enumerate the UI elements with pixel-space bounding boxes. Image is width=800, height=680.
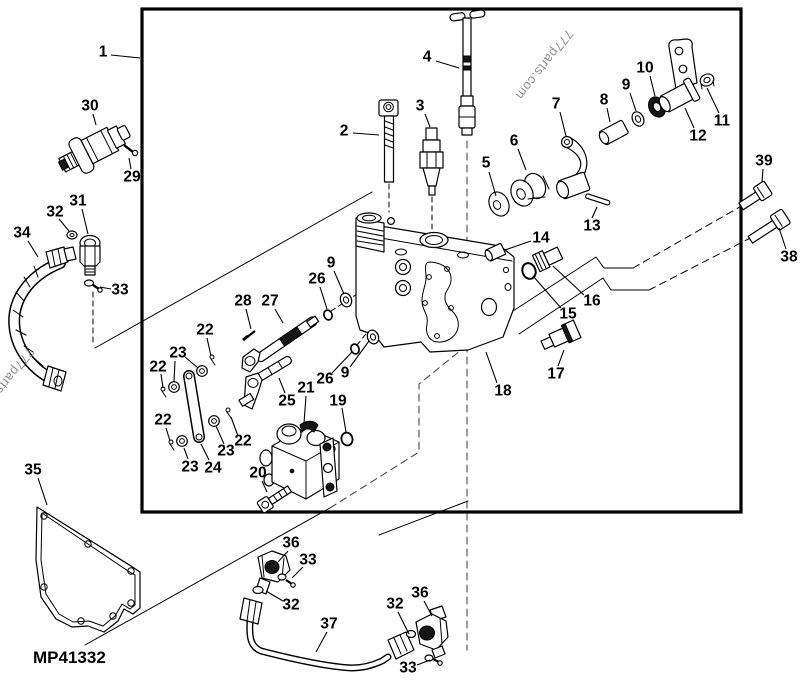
leader-line — [607, 108, 610, 122]
part-number-label: 32 — [46, 204, 63, 221]
diagram-canvas: 777parts.com777parts.com 123456789101112… — [0, 0, 800, 680]
leader-line — [650, 76, 655, 96]
leader-line — [762, 169, 763, 182]
leader-line — [201, 444, 209, 460]
callout-36-43: 36 — [278, 535, 300, 563]
drawing-code-layer: MP41332 — [33, 648, 106, 667]
leader-line — [518, 149, 526, 170]
leader-line — [685, 108, 694, 128]
part-number-label: 23 — [169, 345, 187, 362]
screw-29 — [124, 145, 133, 152]
washer-part-32 — [67, 231, 77, 239]
leader-line — [174, 361, 175, 382]
watermark-text: 777parts.com — [513, 27, 577, 103]
callout-4-3: 4 — [423, 49, 459, 69]
callout-12-11: 12 — [685, 108, 707, 145]
leader-line — [436, 61, 459, 68]
screw-part-28 — [243, 331, 255, 340]
leader-line — [246, 309, 251, 329]
part-number-label: 11 — [714, 113, 731, 130]
leader-line — [630, 93, 636, 111]
callout-6-5: 6 — [510, 133, 526, 171]
part-number-label: 31 — [69, 193, 87, 210]
leader-line — [486, 352, 497, 383]
callout-25-29: 25 — [278, 378, 296, 410]
link-part-24 — [186, 373, 202, 440]
part-number-label: 25 — [278, 393, 296, 410]
part-number-label: 34 — [13, 225, 31, 242]
part-number-label: 5 — [482, 155, 491, 172]
callout-32-45: 32 — [266, 591, 300, 614]
part-number-label: 4 — [423, 49, 432, 66]
callout-27-32: 27 — [261, 293, 283, 324]
part-number-label: 9 — [341, 365, 350, 382]
callout-13-12: 13 — [583, 207, 601, 235]
part-number-label: 22 — [154, 412, 171, 429]
tube-nut-left — [240, 598, 262, 624]
part-number-label: 12 — [689, 128, 706, 145]
part-number-label: 33 — [399, 660, 417, 677]
callout-21-20: 21 — [297, 380, 315, 424]
callout-16-15: 16 — [553, 266, 601, 310]
leader-line — [129, 158, 131, 169]
part-number-label: 39 — [755, 153, 773, 170]
part-number-label: 21 — [297, 380, 315, 397]
leader-line — [292, 567, 303, 578]
drawing-code: MP41332 — [33, 648, 106, 667]
part-number-label: 32 — [386, 596, 403, 613]
part-number-label: 28 — [234, 293, 252, 310]
sheave-part-6 — [507, 170, 550, 210]
callout-39-51: 39 — [755, 153, 773, 183]
part-number-label: 16 — [583, 293, 601, 310]
part-number-label: 8 — [600, 92, 609, 109]
callout-2-1: 2 — [340, 123, 379, 140]
callout-35-42: 35 — [24, 462, 47, 506]
leader-line — [505, 241, 531, 250]
leader-line — [304, 396, 306, 423]
leader-line — [424, 601, 432, 616]
callout-20-19: 20 — [249, 465, 267, 493]
elbow-fitting-part-36-right — [416, 606, 448, 658]
part-number-label: 30 — [81, 98, 98, 115]
leader-line — [28, 241, 38, 257]
callout-3-2: 3 — [416, 98, 430, 128]
leader-line — [161, 374, 163, 388]
callout-34-41: 34 — [13, 225, 38, 258]
leader-line — [38, 478, 47, 505]
leader-line — [184, 448, 188, 459]
gasket-part-35 — [36, 507, 140, 632]
leader-line — [560, 112, 566, 136]
part-number-label: 7 — [552, 96, 561, 113]
callout-32-47: 32 — [386, 596, 409, 635]
callout-9-34: 9 — [327, 255, 344, 295]
arm-bushing-part-12 — [655, 39, 700, 117]
leader-line — [279, 378, 285, 393]
plug-part-16 — [532, 244, 563, 271]
callout-23-27: 23 — [181, 448, 199, 476]
part-number-label: 18 — [494, 383, 512, 400]
callout-10-9: 10 — [636, 60, 655, 97]
callout-33-49: 33 — [399, 660, 430, 677]
leader-line — [82, 209, 88, 234]
part-number-label: 23 — [181, 459, 199, 476]
leader-line — [353, 133, 379, 135]
exploded-parts-diagram: 777parts.com777parts.com 123456789101112… — [0, 0, 800, 680]
part-number-label: 36 — [411, 585, 429, 602]
part-number-label: 22 — [149, 359, 166, 376]
part-number-label: 22 — [234, 433, 251, 450]
callout-32-39: 32 — [46, 204, 69, 232]
leader-line — [316, 632, 327, 652]
callout-1-0: 1 — [99, 44, 140, 61]
leader-line — [342, 408, 346, 432]
watermark-text: 777parts.com — [0, 345, 37, 421]
part-number-label: 17 — [547, 366, 564, 383]
callout-11-10: 11 — [707, 88, 731, 130]
part-number-label: 38 — [780, 249, 798, 266]
part-number-label: 24 — [204, 460, 222, 477]
screw-part-33 — [85, 280, 103, 292]
leader-line — [398, 612, 409, 634]
part-number-label: 32 — [282, 597, 299, 614]
part-number-label: 1 — [99, 44, 108, 61]
part-number-label: 23 — [217, 443, 235, 460]
callout-7-6: 7 — [552, 96, 566, 137]
leader-line — [707, 88, 719, 113]
part-number-label: 15 — [559, 306, 577, 323]
callout-8-7: 8 — [600, 92, 610, 123]
leader-line — [185, 357, 198, 368]
pump-part-21 — [260, 421, 339, 499]
part-number-label: 26 — [316, 371, 334, 388]
part-number-label: 33 — [111, 282, 129, 299]
part-number-label: 6 — [510, 133, 519, 150]
part-number-label: 37 — [320, 616, 337, 633]
spacer-part-8 — [597, 120, 629, 146]
leader-line — [553, 266, 584, 295]
callout-9-8: 9 — [622, 77, 636, 112]
leader-line — [425, 114, 430, 127]
part-number-label: 14 — [532, 230, 550, 247]
callout-38-50: 38 — [779, 228, 798, 266]
callout-37-46: 37 — [316, 616, 338, 653]
part-number-label: 27 — [261, 293, 278, 310]
elbow-fitting-part-31 — [80, 236, 100, 276]
tube-assembly-part-37 — [240, 551, 448, 668]
callout-30-37: 30 — [81, 98, 98, 126]
leader-line — [489, 172, 496, 196]
washer-part-9-top — [630, 110, 646, 128]
screw-part-33-left — [278, 574, 295, 587]
callout-9-35: 9 — [341, 341, 369, 382]
bolt-part-20 — [257, 483, 293, 513]
callout-14-13: 14 — [505, 230, 550, 251]
part-number-label: 29 — [123, 169, 141, 186]
leader-line — [93, 114, 96, 125]
washer-part-32-left — [253, 587, 263, 594]
part-number-label: 22 — [196, 322, 213, 339]
callout-5-4: 5 — [482, 155, 496, 197]
leader-line — [779, 228, 786, 249]
leader-line — [320, 287, 327, 309]
leader-line — [592, 207, 597, 218]
callout-22-22: 22 — [149, 359, 166, 389]
callout-36-48: 36 — [411, 585, 432, 617]
lever-part-7 — [554, 137, 590, 201]
leader-line — [533, 276, 561, 308]
callout-22-23: 22 — [154, 412, 171, 442]
leader-line — [166, 428, 170, 441]
pin-part-13 — [585, 193, 610, 205]
part-number-label: 10 — [636, 60, 653, 77]
part-number-label: 9 — [327, 255, 336, 272]
callout-28-33: 28 — [234, 293, 252, 330]
part-number-label: 26 — [308, 271, 326, 288]
leader-line — [111, 55, 140, 58]
part-number-label: 36 — [282, 535, 300, 552]
callout-26-30: 26 — [308, 271, 327, 310]
callout-23-26: 23 — [216, 426, 235, 460]
part-number-label: 13 — [583, 218, 601, 235]
dipstick-part-4 — [450, 10, 486, 135]
part-number-label: 9 — [622, 77, 631, 94]
nut-part-11 — [698, 72, 716, 89]
leader-line — [266, 591, 283, 601]
part-number-label: 35 — [24, 462, 42, 479]
callout-18-17: 18 — [486, 352, 512, 400]
callout-19-18: 19 — [329, 393, 347, 433]
bolt-part-2 — [379, 100, 398, 182]
valve-housing-part-18 — [356, 213, 514, 352]
leader-line — [417, 660, 430, 665]
o-ring-part-19 — [340, 431, 354, 446]
callout-29-36: 29 — [123, 158, 141, 186]
fitting-part-3 — [420, 128, 443, 195]
part-number-label: 3 — [416, 98, 425, 115]
leader-line — [216, 426, 224, 444]
leader-line — [59, 219, 69, 231]
washer-part-9-upper — [338, 292, 353, 309]
leader-line — [558, 350, 564, 366]
callout-33-44: 33 — [292, 552, 317, 579]
part-number-label: 2 — [340, 123, 349, 140]
callout-22-21: 22 — [196, 322, 213, 357]
leader-line — [207, 338, 211, 356]
leader-line — [334, 271, 344, 294]
washer-part-5 — [485, 189, 513, 220]
bolt-part-38 — [745, 209, 790, 247]
part-number-label: 20 — [249, 465, 266, 482]
part-number-label: 19 — [329, 393, 347, 410]
part-number-label: 33 — [299, 552, 317, 569]
sensor-part-17 — [539, 320, 581, 353]
callout-31-38: 31 — [69, 193, 88, 235]
callout-33-40: 33 — [100, 282, 129, 299]
leader-line — [275, 309, 283, 323]
callout-17-16: 17 — [547, 350, 564, 383]
